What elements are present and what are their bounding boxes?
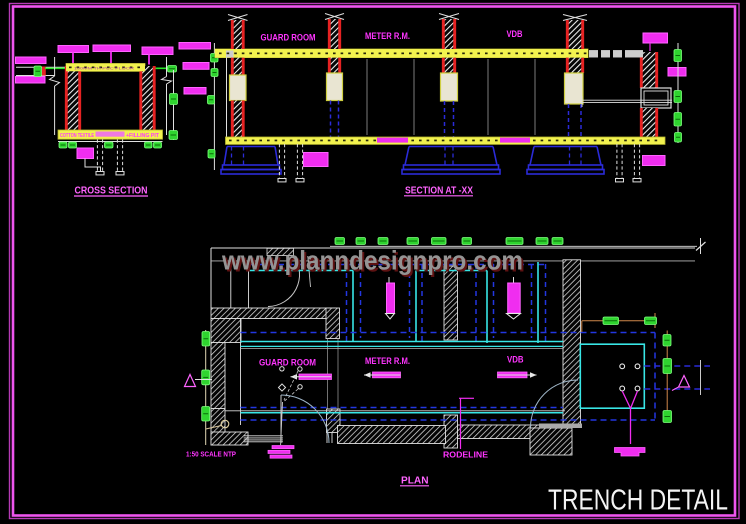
svg-text:CROSS SECTION: CROSS SECTION bbox=[75, 185, 148, 197]
svg-text:100MM TH PCC FLOOR: 100MM TH PCC FLOOR bbox=[74, 67, 134, 71]
svg-text:+FILLING PIT: +FILLING PIT bbox=[126, 133, 159, 139]
svg-text:1:50 SCALE NTP: 1:50 SCALE NTP bbox=[186, 450, 236, 459]
svg-text:COTTON TEXTILE: COTTON TEXTILE bbox=[60, 133, 95, 139]
svg-text:METER R.M.: METER R.M. bbox=[365, 356, 410, 367]
svg-text:TRENCH DETAIL: TRENCH DETAIL bbox=[548, 485, 728, 517]
svg-text:METER R.M.: METER R.M. bbox=[365, 31, 410, 42]
svg-text:GUARD ROOM: GUARD ROOM bbox=[261, 33, 316, 44]
svg-text:www.planndesignpro.com: www.planndesignpro.com bbox=[221, 246, 523, 276]
svg-text:VDB: VDB bbox=[507, 355, 524, 366]
svg-text:SECTION AT -XX: SECTION AT -XX bbox=[405, 185, 473, 197]
svg-text:VDB: VDB bbox=[507, 29, 523, 40]
svg-text:PLAN: PLAN bbox=[401, 476, 429, 487]
svg-text:GUARD ROOM: GUARD ROOM bbox=[259, 358, 316, 369]
svg-text:RODELINE: RODELINE bbox=[443, 450, 488, 460]
